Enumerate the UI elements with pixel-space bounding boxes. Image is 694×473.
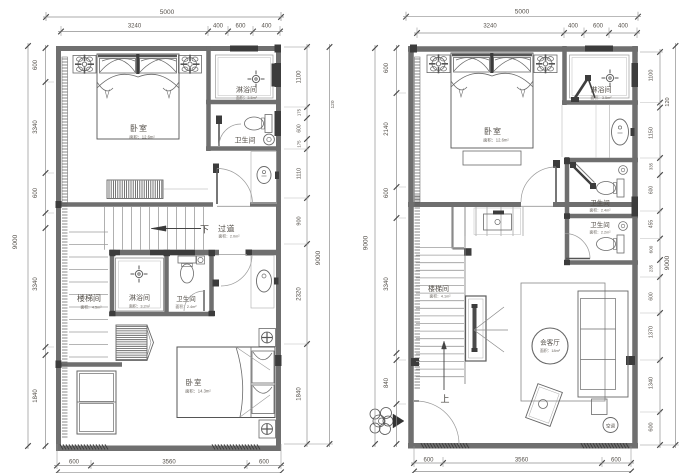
svg-text:面积：3.5m²: 面积：3.5m² <box>590 95 612 100</box>
svg-text:400: 400 <box>618 24 629 30</box>
svg-text:面积：12.6m²: 面积：12.6m² <box>483 137 509 144</box>
svg-text:9000: 9000 <box>363 235 370 250</box>
svg-text:175: 175 <box>297 108 302 116</box>
svg-text:120: 120 <box>330 100 336 108</box>
svg-text:3560: 3560 <box>515 458 529 464</box>
svg-text:235: 235 <box>649 264 654 272</box>
svg-text:淋浴间: 淋浴间 <box>129 293 150 302</box>
svg-text:600: 600 <box>69 460 80 466</box>
svg-text:2140: 2140 <box>384 122 390 136</box>
svg-text:过道: 过道 <box>218 224 235 234</box>
svg-text:600: 600 <box>611 458 622 464</box>
svg-text:3340: 3340 <box>384 277 390 291</box>
svg-text:淋浴间: 淋浴间 <box>591 85 612 94</box>
svg-text:1370: 1370 <box>649 326 655 338</box>
svg-text:600: 600 <box>33 59 39 70</box>
svg-text:下: 下 <box>200 225 209 235</box>
svg-text:600: 600 <box>649 245 654 253</box>
svg-text:面积：3.2m²: 面积：3.2m² <box>129 304 151 309</box>
svg-text:面积：4.5m²: 面积：4.5m² <box>80 305 102 310</box>
svg-text:空调: 空调 <box>606 423 615 430</box>
svg-text:600: 600 <box>649 186 655 195</box>
svg-text:面积：12.6m²: 面积：12.6m² <box>129 134 155 141</box>
svg-text:5000: 5000 <box>160 9 175 16</box>
svg-text:9000: 9000 <box>315 250 322 265</box>
svg-text:3340: 3340 <box>33 120 39 134</box>
svg-text:840: 840 <box>384 377 390 388</box>
svg-text:面积：2.4m²: 面积：2.4m² <box>175 304 197 309</box>
svg-text:400: 400 <box>261 24 272 30</box>
svg-text:3240: 3240 <box>128 24 142 30</box>
svg-text:卧室: 卧室 <box>484 126 502 136</box>
svg-text:淋浴间: 淋浴间 <box>236 85 257 94</box>
svg-text:2320: 2320 <box>297 287 303 301</box>
svg-text:面积：2.2m²: 面积：2.2m² <box>589 230 611 235</box>
svg-text:3240: 3240 <box>483 24 497 30</box>
svg-text:600: 600 <box>297 124 303 133</box>
svg-text:1100: 1100 <box>649 70 655 82</box>
svg-text:120: 120 <box>665 97 671 106</box>
svg-text:600: 600 <box>423 458 434 464</box>
svg-text:600: 600 <box>649 422 655 431</box>
svg-text:卫生间: 卫生间 <box>590 198 610 207</box>
svg-text:455: 455 <box>649 220 655 229</box>
svg-text:卫生间: 卫生间 <box>590 220 610 229</box>
svg-text:1150: 1150 <box>649 127 655 139</box>
svg-text:卧室: 卧室 <box>186 377 203 387</box>
svg-text:9000: 9000 <box>12 234 19 249</box>
svg-text:335: 335 <box>649 162 654 170</box>
svg-text:面积：2.4m²: 面积：2.4m² <box>589 208 611 213</box>
svg-text:400: 400 <box>568 24 579 30</box>
svg-text:楼梯间: 楼梯间 <box>77 293 101 303</box>
svg-text:面积：3.5m²: 面积：3.5m² <box>236 95 258 100</box>
svg-text:面积：4.1m²: 面积：4.1m² <box>429 294 451 299</box>
svg-text:1110: 1110 <box>297 168 303 179</box>
svg-text:400: 400 <box>213 24 224 30</box>
svg-text:600: 600 <box>33 187 39 198</box>
svg-text:1340: 1340 <box>649 377 655 389</box>
svg-text:卫生间: 卫生间 <box>235 136 256 145</box>
svg-text:1840: 1840 <box>33 389 39 403</box>
svg-text:上: 上 <box>440 394 449 404</box>
svg-text:面积：2.0m²: 面积：2.0m² <box>218 234 240 239</box>
svg-text:1840: 1840 <box>297 387 303 401</box>
svg-text:楼梯间: 楼梯间 <box>428 284 449 293</box>
svg-text:面积：18m²: 面积：18m² <box>540 348 561 353</box>
svg-text:600: 600 <box>649 292 655 301</box>
svg-text:3560: 3560 <box>162 460 176 466</box>
svg-text:会客厅: 会客厅 <box>540 338 560 347</box>
svg-text:175: 175 <box>297 140 302 148</box>
svg-text:600: 600 <box>384 187 390 198</box>
svg-text:600: 600 <box>259 460 270 466</box>
svg-text:3340: 3340 <box>33 277 39 291</box>
svg-text:600: 600 <box>235 24 246 30</box>
svg-text:600: 600 <box>384 62 390 73</box>
svg-text:卧室: 卧室 <box>130 123 148 133</box>
svg-text:9000: 9000 <box>664 255 671 270</box>
svg-text:1100: 1100 <box>297 70 303 84</box>
svg-text:面积：14.3m²: 面积：14.3m² <box>185 388 211 395</box>
svg-text:600: 600 <box>593 24 604 30</box>
svg-text:5000: 5000 <box>515 9 530 16</box>
svg-text:900: 900 <box>297 216 303 225</box>
